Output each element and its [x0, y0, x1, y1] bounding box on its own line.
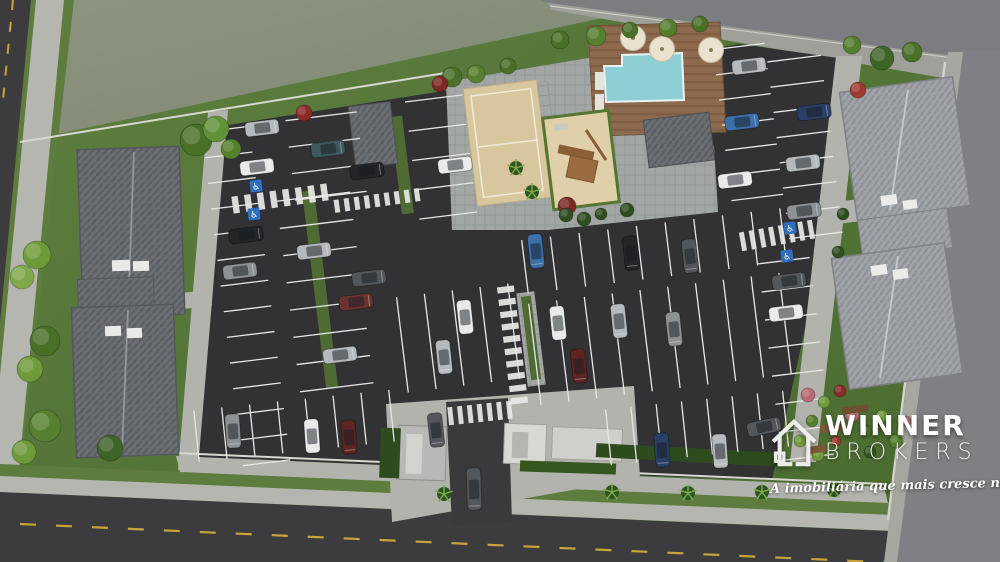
accessible-parking-icon: ♿ [780, 249, 794, 263]
tree [467, 65, 485, 83]
garden-bed [806, 415, 818, 427]
parked-car [304, 419, 321, 454]
parked-car [570, 348, 588, 383]
accessible-parking-icon: ♿ [247, 207, 260, 221]
parked-car [456, 299, 474, 334]
tree [902, 42, 922, 62]
garden-bed [818, 396, 830, 408]
tree [203, 116, 229, 142]
tree [586, 26, 606, 46]
gatehouse-detail [512, 432, 529, 459]
parked-car [435, 339, 453, 374]
shrub [577, 212, 591, 226]
shrub [620, 203, 634, 217]
tree [23, 241, 51, 269]
site-plan-scene: ♿♿♿♿ [0, 0, 1000, 562]
tree [221, 139, 241, 159]
site-plan-render: ♿♿♿♿ WINNER BROKERS A imobiliária que ma… [0, 0, 1000, 562]
tree [659, 19, 677, 37]
umbrella-pole [709, 48, 713, 52]
shrub [837, 208, 849, 220]
garden-bed [794, 435, 806, 447]
parked-car [622, 235, 640, 270]
garden-bed [889, 434, 903, 448]
entering-car [466, 468, 482, 510]
accessible-parking-icon: ♿ [249, 179, 262, 193]
rooftop-ac-unit [133, 261, 149, 272]
garden-bed [864, 446, 876, 458]
tree [10, 265, 34, 289]
apartment-building-roof [840, 77, 971, 222]
gate-structure-detail [405, 434, 422, 475]
accessible-parking-icon: ♿ [783, 221, 797, 235]
garden-bed [831, 436, 841, 446]
clubhouse-roof [643, 112, 714, 168]
tree [551, 31, 569, 49]
flowering-bush [432, 76, 448, 92]
garden-bed [860, 425, 872, 437]
tree [500, 58, 516, 74]
rooftop-ac-unit [112, 260, 130, 272]
parked-car [549, 305, 567, 340]
rooftop-ac-unit [892, 268, 908, 280]
rooftop-ac-unit [105, 326, 121, 337]
tree [30, 326, 60, 356]
shrub [832, 246, 844, 258]
tree [12, 440, 36, 464]
umbrella-pole [660, 47, 664, 51]
svg-text:♿: ♿ [252, 182, 261, 193]
parked-car [712, 434, 729, 469]
tree [29, 410, 61, 442]
parked-car [527, 233, 545, 268]
tree [870, 46, 894, 70]
shrub [559, 208, 573, 222]
garden-bed [876, 410, 888, 422]
parked-car [427, 412, 445, 447]
parked-car [654, 433, 671, 468]
garden-bed [801, 388, 815, 402]
flowering-bush [296, 105, 312, 121]
hedge [379, 428, 401, 479]
rooftop-ac-unit [127, 328, 142, 339]
parked-car [681, 238, 699, 273]
parked-car [665, 311, 683, 346]
garden-bed [834, 385, 846, 397]
flowering-bush [850, 82, 866, 98]
svg-text:♿: ♿ [783, 252, 792, 263]
svg-text:♿: ♿ [786, 224, 795, 235]
tree [622, 22, 638, 38]
tree [17, 356, 43, 382]
parked-car [610, 303, 628, 338]
parked-car [341, 420, 358, 455]
svg-text:♿: ♿ [250, 210, 259, 221]
tree [97, 435, 123, 461]
garden-bed [901, 416, 911, 426]
shrub [595, 208, 607, 220]
pool-lounger [595, 94, 604, 110]
tree [843, 36, 861, 54]
pool-lounger [595, 72, 604, 90]
tree [692, 16, 708, 32]
parked-car [225, 414, 242, 449]
